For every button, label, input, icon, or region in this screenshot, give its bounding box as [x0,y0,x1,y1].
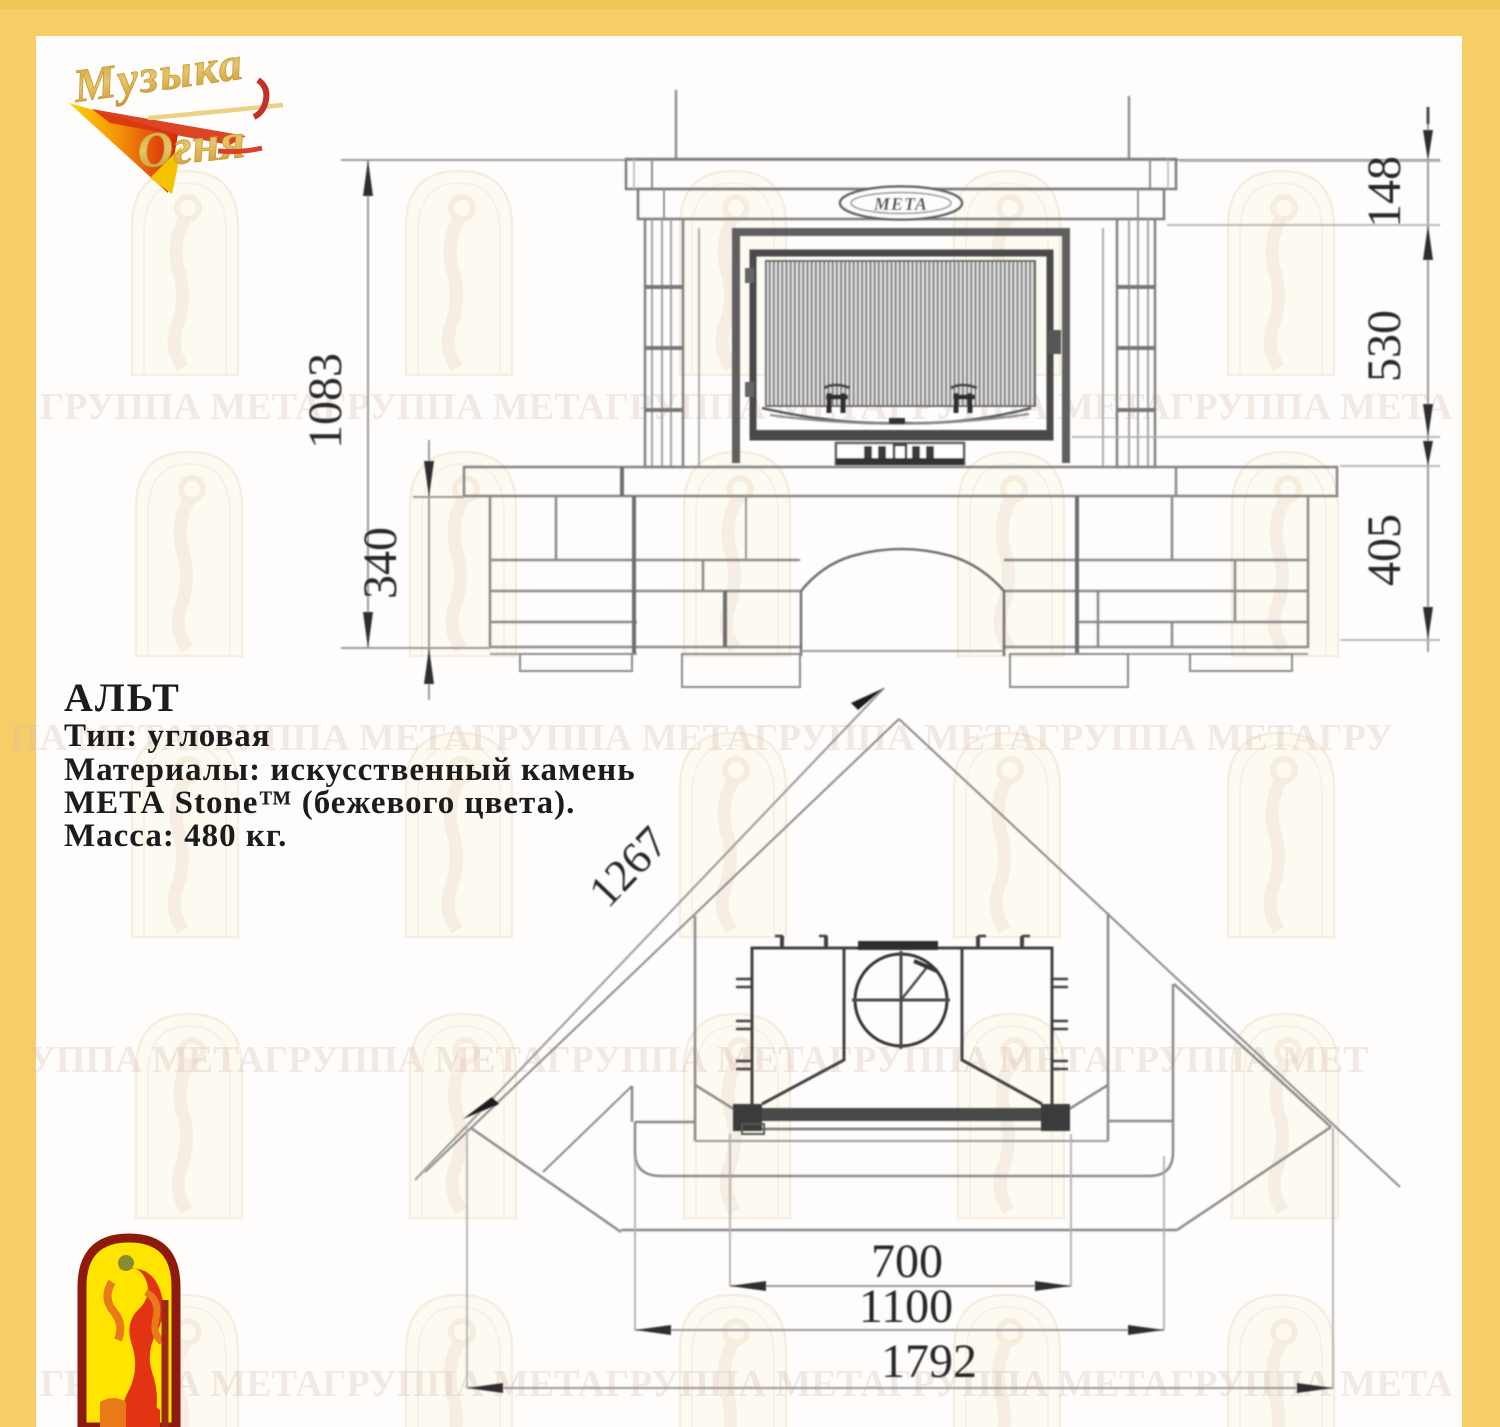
svg-text:МЕТА: МЕТА [873,194,928,214]
svg-text:530: 530 [1358,310,1411,382]
svg-text:Масса: 480 кг.: Масса: 480 кг. [64,818,287,854]
svg-text:1792: 1792 [881,1335,977,1388]
svg-text:340: 340 [354,527,407,599]
svg-text:МЕТА Stone™ (бежевого цвета).: МЕТА Stone™ (бежевого цвета). [64,785,575,821]
svg-text:УППА МЕТАГРУППА МЕТАГРУППА МЕТ: УППА МЕТАГРУППА МЕТАГРУППА МЕТАГРУППА МЕ… [28,1039,1368,1081]
svg-text:АЛЬТ: АЛЬТ [64,675,181,720]
svg-text:148: 148 [1358,156,1411,228]
svg-text:Огня: Огня [134,112,247,179]
svg-text:Тип: угловая: Тип: угловая [64,718,271,754]
svg-text:405: 405 [1358,514,1411,586]
svg-text:ГРУППА МЕТАГРУППА МЕТАГРУППА М: ГРУППА МЕТАГРУППА МЕТАГРУППА МЕТАГРУППА … [40,1363,1453,1405]
svg-text:1100: 1100 [859,1280,953,1333]
svg-text:1083: 1083 [299,353,352,449]
svg-text:Материалы: искусственный камен: Материалы: искусственный камень [64,752,636,788]
